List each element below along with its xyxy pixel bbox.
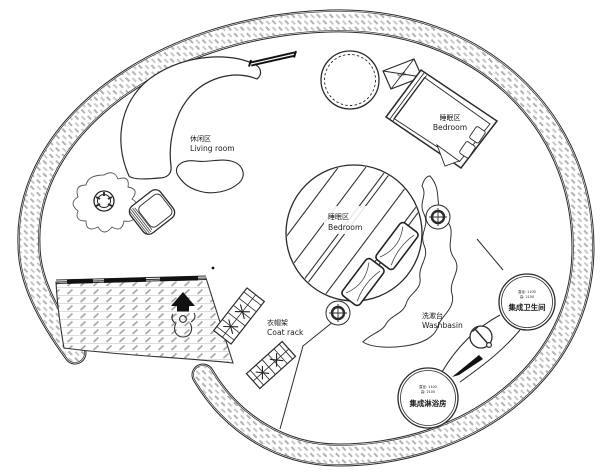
label-coat-rack-zh: 衣帽架 [267, 318, 288, 327]
coat-rack-unit-1 [214, 288, 265, 344]
label-coat-rack-en: Coat rack [267, 328, 304, 337]
washbasin-sink [470, 326, 492, 348]
floor-plan-canvas: 空调 [0, 0, 611, 473]
plan-dot [212, 267, 215, 270]
label-bedroom-upper-en: Bedroom [433, 123, 467, 132]
toilet-partition-line [477, 239, 503, 270]
shower-pod-name: 集成淋浴房 [409, 399, 447, 408]
entrance-floor [56, 278, 233, 363]
lounge-chair [127, 187, 178, 237]
toilet-pod-dim2: 高: 2100 [520, 294, 534, 299]
ceiling-light-symbol-1 [426, 205, 450, 229]
label-bedroom-loft-en: Bedroom [328, 223, 362, 232]
label-bedroom-loft-zh: 睡眠区 [328, 213, 349, 221]
coffee-table [176, 160, 243, 193]
toilet-pod-name: 集成卫生间 [508, 303, 546, 312]
label-living-room-zh: 休闲区 [190, 134, 211, 143]
toilet-pod-dim1: 直径: 1100 [518, 289, 536, 294]
shower-pod-dim1: 直径: 1100 [419, 384, 437, 389]
label-washbasin-en: Washbasin [422, 321, 463, 330]
floor-plan-page: 空调 [0, 0, 611, 473]
wall-tv [249, 51, 296, 67]
shower-pod-circle: 直径: 1100 高: 2100 集成淋浴房 [398, 368, 458, 428]
toilet-pod-circle: 直径: 1100 高: 2100 集成卫生间 [499, 274, 555, 330]
ceiling-light-symbol-2 [326, 301, 350, 325]
potted-plant [73, 173, 137, 232]
label-bedroom-upper-zh: 睡眠区 [440, 114, 461, 122]
flow-arrow [452, 355, 483, 377]
shower-pod-dim2: 高: 2100 [421, 389, 435, 394]
round-table [321, 51, 379, 109]
coat-rack-unit-2 [246, 342, 295, 389]
label-living-room-en: Living room [190, 144, 235, 153]
label-washbasin-zh: 洗漱台 [422, 311, 443, 320]
